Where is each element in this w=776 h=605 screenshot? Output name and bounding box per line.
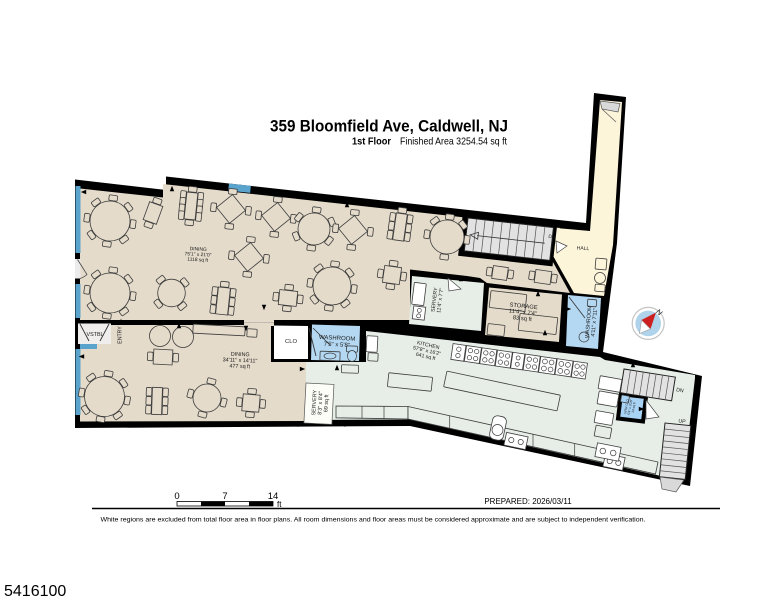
svg-text:HALL: HALL: [577, 245, 590, 252]
svg-text:VSTBL: VSTBL: [86, 332, 103, 338]
svg-text:7: 7: [222, 491, 227, 502]
svg-text:1118 sq ft: 1118 sq ft: [187, 257, 209, 264]
svg-text:69 sq ft: 69 sq ft: [323, 394, 330, 412]
svg-text:DN: DN: [548, 234, 556, 241]
svg-text:PREPARED: 2026/03/11: PREPARED: 2026/03/11: [484, 497, 572, 506]
svg-text:ft: ft: [277, 500, 282, 509]
svg-text:White regions are excluded fro: White regions are excluded from total fl…: [101, 517, 646, 524]
svg-text:477 sq ft: 477 sq ft: [229, 364, 250, 371]
svg-text:ENTRY: ENTRY: [117, 326, 123, 344]
svg-text:359 Bloomfield Ave, Caldwell,: 359 Bloomfield Ave, Caldwell, NJ: [270, 117, 508, 136]
svg-text:Finished Area 3254.54 sq ft: Finished Area 3254.54 sq ft: [400, 136, 507, 148]
svg-text:5416100: 5416100: [4, 583, 66, 600]
svg-text:1st Floor: 1st Floor: [352, 136, 391, 148]
svg-text:UP: UP: [678, 418, 686, 425]
svg-text:0: 0: [174, 491, 179, 502]
svg-text:CLO: CLO: [285, 339, 297, 345]
